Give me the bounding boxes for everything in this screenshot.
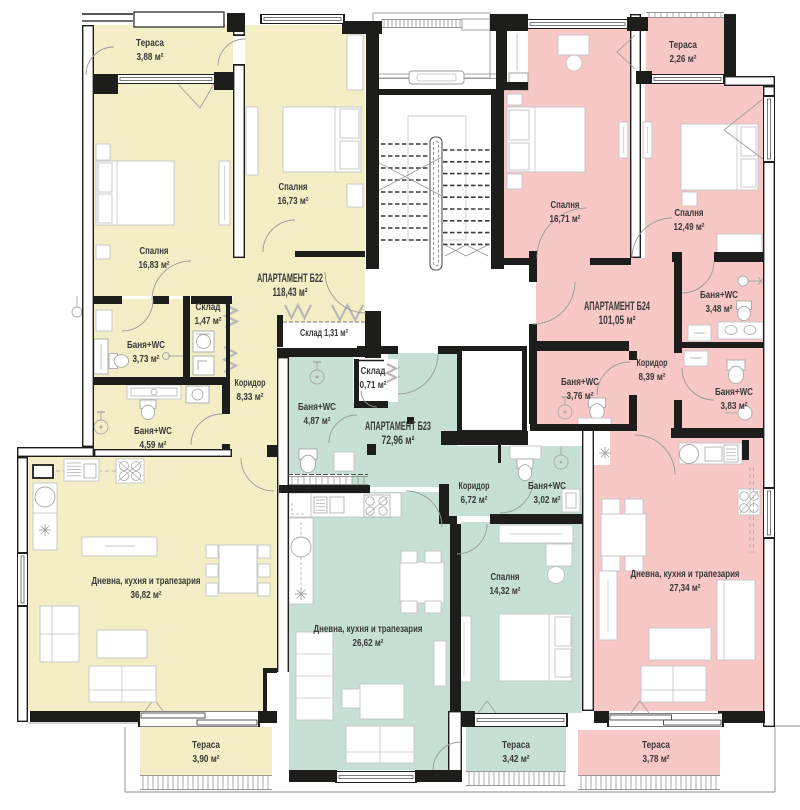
svg-text:101,05 м²: 101,05 м² <box>599 313 636 327</box>
svg-text:0,71 м²: 0,71 м² <box>360 379 387 391</box>
svg-text:АПАРТАМЕНТ Б22: АПАРТАМЕНТ Б22 <box>257 271 323 285</box>
svg-text:Тераса: Тераса <box>192 739 220 751</box>
svg-text:АПАРТАМЕНТ Б23: АПАРТАМЕНТ Б23 <box>365 419 431 433</box>
svg-text:4,87 м²: 4,87 м² <box>304 415 331 427</box>
svg-text:14,32 м²: 14,32 м² <box>490 585 521 597</box>
svg-text:Коридор: Коридор <box>235 377 266 389</box>
svg-text:16,83 м²: 16,83 м² <box>139 259 170 271</box>
svg-text:Тераса: Тераса <box>669 39 697 51</box>
svg-text:3,78 м²: 3,78 м² <box>643 753 670 765</box>
svg-text:Дневна, кухня и трапезария: Дневна, кухня и трапезария <box>631 568 740 580</box>
svg-text:Тераса: Тераса <box>642 739 670 751</box>
svg-text:Тераса: Тераса <box>136 37 164 49</box>
svg-text:Дневна, кухня и трапезария: Дневна, кухня и трапезария <box>92 575 201 587</box>
svg-text:3,88 м²: 3,88 м² <box>137 51 164 63</box>
svg-text:6,72 м²: 6,72 м² <box>461 494 488 506</box>
svg-text:Спалня: Спалня <box>551 199 580 211</box>
svg-text:Склад 1,31 м²: Склад 1,31 м² <box>300 327 348 339</box>
svg-text:Баня+WC: Баня+WC <box>528 480 566 492</box>
svg-text:3,76 м²: 3,76 м² <box>567 390 594 402</box>
svg-text:27,34 м²: 27,34 м² <box>670 582 701 594</box>
svg-text:Спалня: Спалня <box>491 571 520 583</box>
svg-text:Баня+WC: Баня+WC <box>700 289 738 301</box>
svg-text:72,96 м²: 72,96 м² <box>382 433 415 447</box>
svg-text:1,47 м²: 1,47 м² <box>195 315 222 327</box>
svg-text:3,48 м²: 3,48 м² <box>706 303 733 315</box>
svg-text:Спалня: Спалня <box>140 245 169 257</box>
svg-text:36,82 м²: 36,82 м² <box>131 589 162 601</box>
svg-text:3,73 м²: 3,73 м² <box>133 353 160 365</box>
svg-text:Баня+WC: Баня+WC <box>134 425 172 437</box>
svg-text:Баня+WC: Баня+WC <box>127 339 165 351</box>
svg-text:Коридор: Коридор <box>637 357 668 369</box>
svg-text:8,33 м²: 8,33 м² <box>237 391 264 403</box>
svg-text:8,39 м²: 8,39 м² <box>639 371 666 383</box>
svg-text:118,43 м²: 118,43 м² <box>273 285 308 299</box>
svg-text:Склад: Склад <box>196 301 221 313</box>
svg-text:2,26 м²: 2,26 м² <box>670 53 697 65</box>
svg-text:Баня+WC: Баня+WC <box>298 401 336 413</box>
svg-text:26,62 м²: 26,62 м² <box>353 637 384 649</box>
svg-text:Баня+WC: Баня+WC <box>715 386 753 398</box>
svg-text:Спалня: Спалня <box>279 181 308 193</box>
svg-text:4,59 м²: 4,59 м² <box>140 439 167 451</box>
svg-text:3,42 м²: 3,42 м² <box>503 753 530 765</box>
svg-text:АПАРТАМЕНТ Б24: АПАРТАМЕНТ Б24 <box>584 299 650 313</box>
svg-text:3,02 м²: 3,02 м² <box>534 494 561 506</box>
svg-text:3,83 м²: 3,83 м² <box>721 400 748 412</box>
svg-text:Тераса: Тераса <box>502 739 530 751</box>
svg-text:Баня+WC: Баня+WC <box>561 376 599 388</box>
svg-text:16,73 м²: 16,73 м² <box>278 195 309 207</box>
svg-text:Спалня: Спалня <box>675 207 704 219</box>
svg-text:Склад: Склад <box>361 365 386 377</box>
svg-text:12,49 м²: 12,49 м² <box>674 221 705 233</box>
svg-text:16,71 м²: 16,71 м² <box>550 213 581 225</box>
svg-text:Коридор: Коридор <box>459 480 490 492</box>
svg-text:3,90 м²: 3,90 м² <box>193 753 220 765</box>
svg-text:Дневна, кухня и трапезария: Дневна, кухня и трапезария <box>314 623 423 635</box>
